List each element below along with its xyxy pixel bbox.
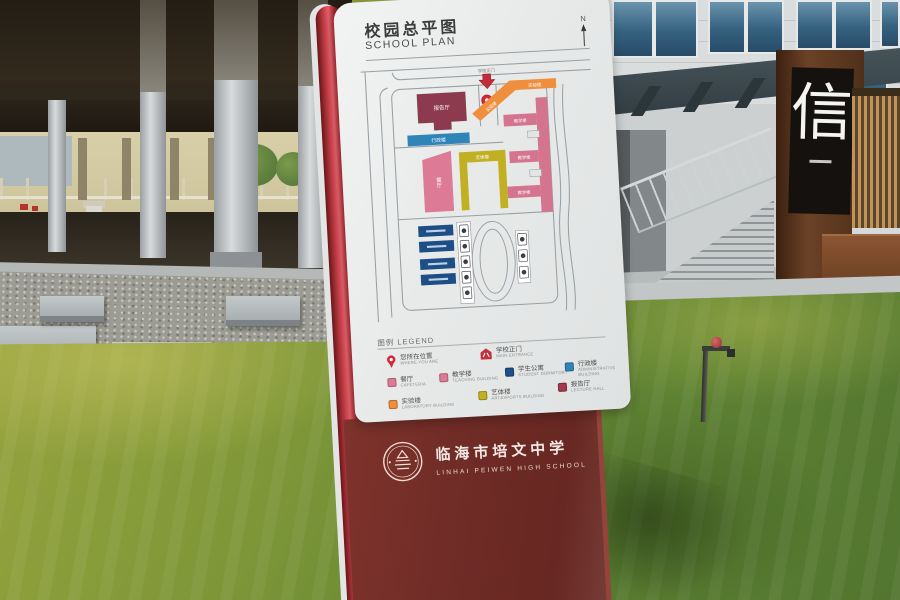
legend-label-en: ART&SPORTS BUILDING [491, 394, 544, 402]
stepping-stone [40, 296, 104, 322]
pillar [214, 80, 258, 266]
distant-pillar [122, 138, 131, 200]
legend-item-administrative: 行政楼 ADMINISTRATIVE BUILDING [565, 358, 630, 379]
map-running-track [470, 220, 517, 302]
location-pin-icon [386, 355, 397, 370]
pillar [48, 100, 66, 252]
wood-slat-screen [852, 88, 900, 238]
map-building-teaching: 教学楼 教学楼 教学楼 [503, 97, 554, 214]
school-emblem-icon [381, 439, 425, 483]
legend-item-dormitory: 学生公寓 STUDENT DORMITORY [505, 364, 568, 380]
school-plan-pylon-sign: 校园总平图 SCHOOL PLAN N [327, 0, 644, 600]
legend-label-en: MAIN ENTRANCE [496, 353, 533, 360]
campus-map: 学校正门 报告厅 行政楼 [350, 55, 612, 328]
legend-swatch [565, 362, 574, 371]
water-tap-nozzle [727, 349, 735, 357]
legend-item-teaching: 教学楼 TEACHING BUILDING [439, 369, 499, 384]
pillar [140, 92, 166, 258]
legend-label-en: STUDENT DORMITORY [518, 371, 568, 379]
legend-label-en: TEACHING BUILDING [452, 377, 498, 384]
map-building-art-sports: 艺体楼 [459, 150, 509, 211]
map-basketball-courts [457, 222, 475, 304]
gate-icon [480, 348, 493, 361]
map-building-cafeteria: 餐厅 [422, 151, 454, 213]
legend-swatch [558, 383, 567, 392]
pillar-upper [214, 0, 258, 92]
window [612, 0, 698, 58]
legend-item-you-are-here: 您所在位置 WHERE YOU ARE [386, 352, 439, 369]
legend-swatch [505, 367, 514, 376]
legend-label-en: ADMINISTRATIVE BUILDING [578, 366, 629, 378]
svg-text:N: N [580, 14, 586, 23]
pillar-upper [140, 0, 166, 100]
entrance-arrow-icon [479, 74, 495, 89]
map-buildings-dormitories [418, 225, 456, 286]
water-tap-valve [711, 337, 722, 348]
legend-item-lecture-hall: 报告厅 LECTURE HALL [558, 380, 605, 395]
campus-photo-scene: 信 校园总平图 SCHOOL PLAN N [0, 0, 900, 600]
window-mullion [744, 0, 748, 54]
legend-item-laboratory: 实验楼 LABORATORY BUILDING [388, 396, 454, 412]
distant-red-sign [20, 204, 28, 210]
legend-swatch [387, 378, 396, 387]
legend-label-en: LABORATORY BUILDING [402, 403, 455, 411]
window-mullion [652, 0, 656, 58]
map-entrance-label: 学校正门 [478, 67, 495, 75]
distant-red-sign [32, 206, 38, 211]
window [708, 0, 784, 54]
legend-item-cafeteria: 餐厅 CAFETERIA [387, 375, 426, 389]
legend-swatch [388, 400, 397, 409]
legend-label-en: LECTURE HALL [571, 387, 605, 394]
calligraphy-plaque: 信 [788, 67, 854, 215]
plaque-character: 信 [790, 81, 854, 145]
legend-swatch [478, 391, 487, 400]
plaque-small-text [809, 160, 831, 164]
map-building-lecture-hall: 报告厅 [417, 92, 467, 131]
window [796, 0, 872, 50]
compass-north-icon: N [574, 12, 594, 51]
sign-map-panel: 校园总平图 SCHOOL PLAN N [333, 0, 631, 423]
legend-item-art-sports: 艺体楼 ART&SPORTS BUILDING [478, 387, 545, 403]
legend-label-en: WHERE YOU ARE [400, 360, 438, 367]
legend-label-en: CAFETERIA [401, 383, 427, 389]
distant-pillar [170, 138, 179, 200]
school-name-zh: 临海市培文中学 [435, 435, 587, 464]
map-basketball-courts [515, 230, 530, 283]
window-mullion [832, 0, 836, 50]
stepping-stone [226, 296, 300, 326]
distant-pillar [78, 138, 87, 200]
legend-item-main-entrance: 学校正门 MAIN ENTRANCE [480, 345, 534, 360]
window [880, 0, 900, 48]
legend-swatch [439, 373, 448, 382]
